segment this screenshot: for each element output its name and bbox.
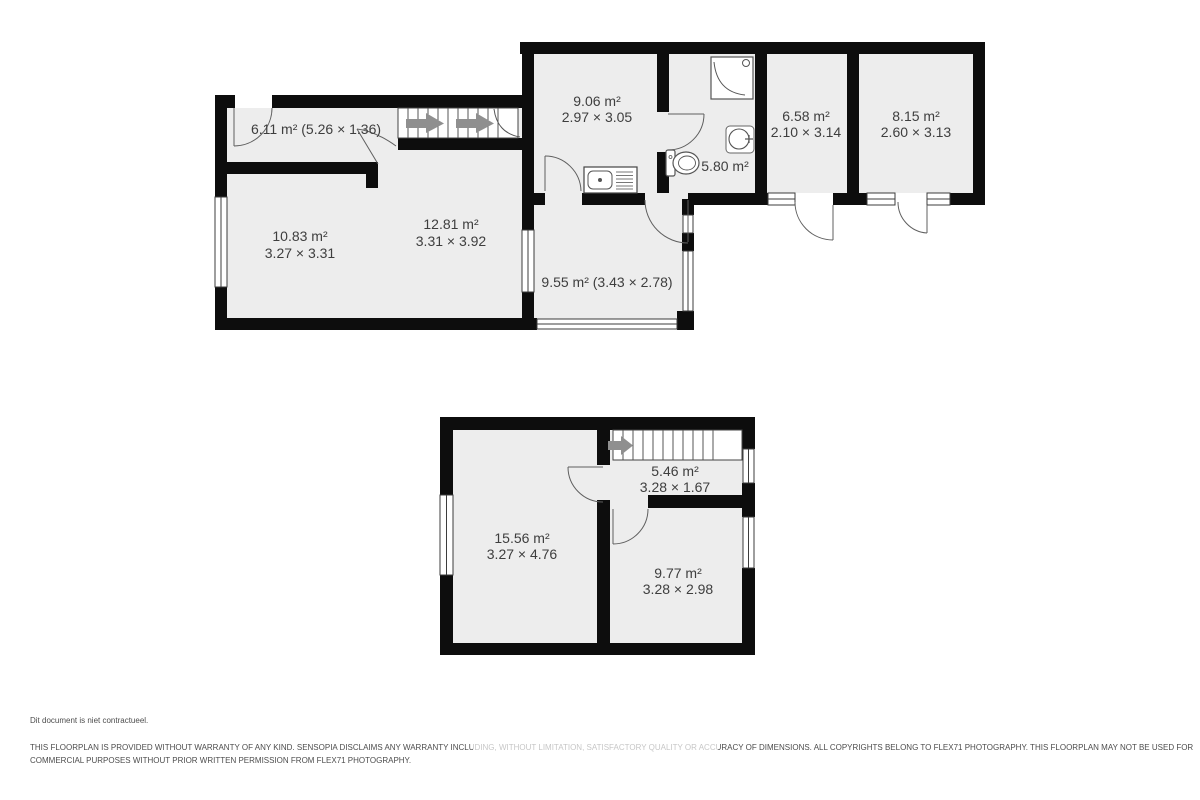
window (867, 193, 895, 205)
floorplan-drawing: 6.11 m² (5.26 × 1.36) 9.06 m² 2.97 × 3.0… (0, 0, 1200, 800)
room-label-bedroom1-area: 6.58 m² (782, 108, 830, 124)
room-label-bedroom4-dims: 3.28 × 2.98 (643, 581, 714, 597)
room-label-bedroom3-dims: 3.27 × 4.76 (487, 546, 558, 562)
toilet (666, 150, 699, 176)
footer-note: Dit document is niet contractueel. (30, 716, 148, 725)
conservatory-window-bottom (537, 319, 677, 329)
conservatory-area (528, 199, 688, 320)
bedroom1-exterior-door (795, 202, 833, 240)
window (522, 230, 534, 292)
room-label-bedroom4-area: 9.77 m² (654, 565, 702, 581)
floorplan-page: 6.11 m² (5.26 × 1.36) 9.06 m² 2.97 × 3.0… (0, 0, 1200, 800)
window (927, 193, 950, 205)
room-label-living-dims: 3.31 × 3.92 (416, 233, 487, 249)
room-label-living-area: 12.81 m² (423, 216, 479, 232)
washbasin (726, 126, 754, 153)
room-label-bedroom1-dims: 2.10 × 3.14 (771, 124, 842, 140)
bedroom2-exterior-door (898, 202, 927, 233)
room-label-sitting-area: 10.83 m² (272, 228, 328, 244)
room-label-kitchen-dims: 2.97 × 3.05 (562, 109, 633, 125)
room-label-bathroom: 5.80 m² (701, 158, 749, 174)
first-floor-plan: 5.46 m² 3.28 × 1.67 15.56 m² 3.27 × 4.76… (440, 417, 755, 655)
room-label-hall: 6.11 m² (5.26 × 1.36) (251, 121, 381, 137)
window (743, 449, 754, 483)
ground-floor-plan: 6.11 m² (5.26 × 1.36) 9.06 m² 2.97 × 3.0… (215, 42, 985, 330)
staircase-ground (398, 108, 520, 138)
room-label-kitchen-area: 9.06 m² (573, 93, 621, 109)
room-label-conservatory: 9.55 m² (3.43 × 2.78) (541, 274, 672, 290)
kitchen-sink (584, 167, 637, 193)
disclaimer-line-1: THIS FLOORPLAN IS PROVIDED WITHOUT WARRA… (30, 743, 1193, 752)
room-label-bedroom3-area: 15.56 m² (494, 530, 550, 546)
window (440, 495, 453, 575)
window (768, 193, 795, 205)
window (743, 517, 754, 568)
room-label-landing-area: 5.46 m² (651, 463, 699, 479)
room-label-bedroom2-dims: 2.60 × 3.13 (881, 124, 952, 140)
room-label-landing-dims: 3.28 × 1.67 (640, 479, 711, 495)
window (215, 197, 227, 287)
room-label-bedroom2-area: 8.15 m² (892, 108, 940, 124)
staircase-first (608, 430, 742, 460)
disclaimer-line-2: COMMERCIAL PURPOSES WITHOUT PRIOR WRITTE… (30, 756, 411, 765)
room-label-sitting-dims: 3.27 × 3.31 (265, 245, 336, 261)
shower (711, 57, 753, 99)
